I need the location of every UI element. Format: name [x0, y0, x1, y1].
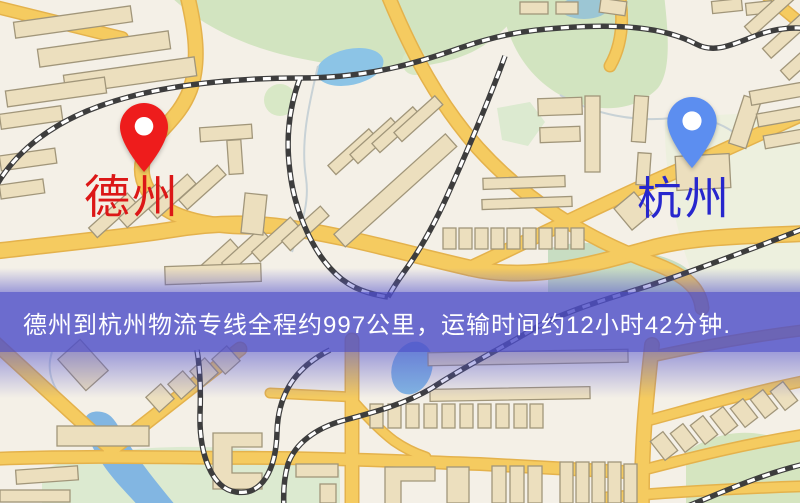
route-info-banner: 德州到杭州物流专线全程约997公里，运输时间约12小时42分钟.: [0, 292, 800, 352]
map-pin-icon: [666, 97, 718, 168]
destination-city-label: 杭州: [637, 173, 731, 224]
destination-label-wrap: 杭州: [637, 176, 731, 221]
route-info-text: 德州到杭州物流专线全程约997公里，运输时间约12小时42分钟.: [0, 305, 731, 340]
map-pin-icon: [120, 103, 168, 172]
origin-marker[interactable]: [120, 103, 168, 172]
map-artwork: [0, 0, 800, 503]
banner-fade-bottom: [0, 352, 800, 398]
destination-marker[interactable]: [666, 97, 718, 168]
logistics-route-map: 德州 杭州 德州到杭州物流专线全程约997公里，运输时间约12小时42分钟.: [0, 0, 800, 503]
origin-label-wrap: 德州: [84, 174, 180, 220]
banner-fade-top: [0, 268, 800, 292]
origin-city-label: 德州: [84, 171, 180, 223]
